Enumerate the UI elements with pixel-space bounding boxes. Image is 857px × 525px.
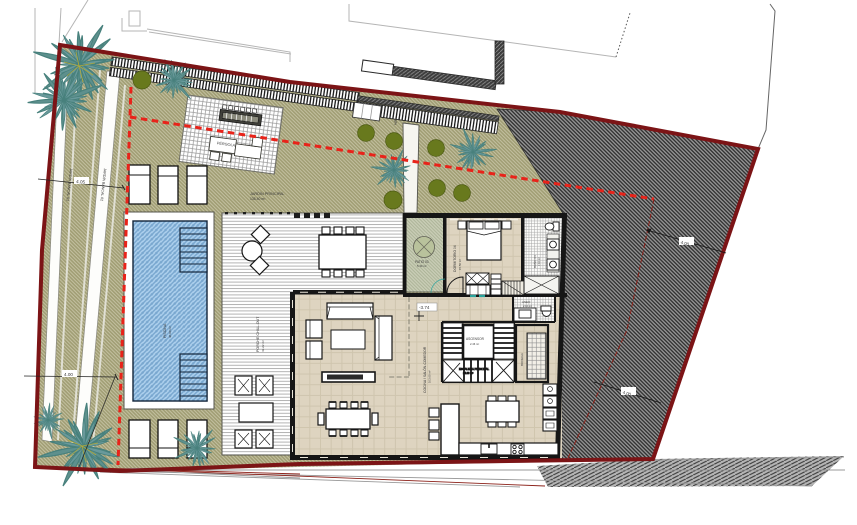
- svg-text:PORCHE CHILL-OUT: PORCHE CHILL-OUT: [256, 316, 260, 352]
- svg-text:BODEGA: BODEGA: [520, 353, 524, 366]
- svg-text:43.22 m²: 43.22 m²: [261, 340, 265, 352]
- svg-text:PISCINA: PISCINA: [163, 323, 167, 338]
- svg-text:135.40 m²: 135.40 m²: [250, 197, 266, 201]
- svg-text:DORMITORIO 04: DORMITORIO 04: [453, 245, 457, 272]
- svg-text:2.46 m²: 2.46 m²: [470, 342, 479, 346]
- svg-text:-3.74: -3.74: [419, 305, 430, 310]
- svg-text:ASEO: ASEO: [522, 300, 531, 304]
- svg-text:ESCALERA PRINCIPAL: ESCALERA PRINCIPAL: [459, 367, 490, 371]
- svg-text:BAÑO 04: BAÑO 04: [532, 255, 537, 268]
- svg-text:14.30 m²: 14.30 m²: [463, 371, 473, 375]
- svg-text:7.10 m²: 7.10 m²: [537, 257, 541, 266]
- svg-text:JARDÍN PRINCIPAL: JARDÍN PRINCIPAL: [250, 192, 285, 196]
- svg-text:4.00: 4.00: [64, 372, 73, 377]
- svg-text:COCINA / SALÓN-COMEDOR: COCINA / SALÓN-COMEDOR: [422, 346, 427, 393]
- svg-text:15.50 m²: 15.50 m²: [458, 259, 462, 270]
- svg-text:103.60 m²: 103.60 m²: [428, 370, 432, 383]
- svg-text:5.30 m²: 5.30 m²: [417, 264, 427, 268]
- svg-text:2.10 m²: 2.10 m²: [523, 304, 532, 308]
- svg-text:4.05: 4.05: [76, 179, 86, 185]
- svg-text:ASCENSOR: ASCENSOR: [466, 337, 485, 341]
- svg-text:40.00 m²: 40.00 m²: [168, 326, 172, 338]
